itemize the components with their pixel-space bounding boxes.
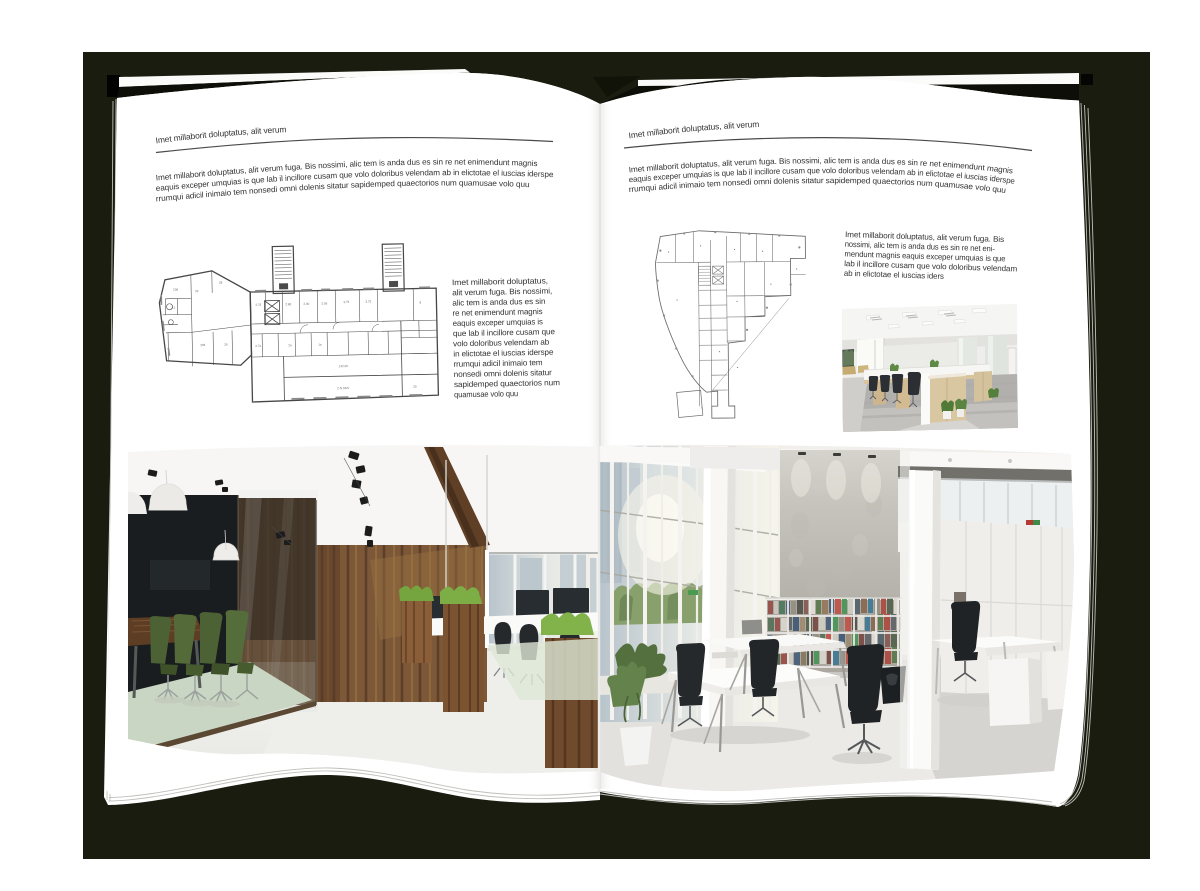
svg-text:2.7a: 2.7a [255,344,261,348]
svg-text:2-N 3AN: 2-N 3AN [337,386,349,390]
svg-text:volo doloribus velendam ab: volo doloribus velendam ab [453,338,550,349]
svg-text:nonsedi omni dolenis sitatur: nonsedi omni dolenis sitatur [454,368,553,379]
svg-text:rrumqui adicil inimaio tem: rrumqui adicil inimaio tem [453,358,543,369]
svg-text:▲: ▲ [667,251,669,254]
svg-text:4.1: 4.1 [171,306,176,310]
svg-text:206: 206 [173,288,178,292]
svg-text:▲: ▲ [736,366,738,369]
svg-text:1a: 1a [318,343,322,347]
svg-text:in elictotae el iuscias idersp: in elictotae el iuscias iderspe [453,348,554,359]
svg-text:▲: ▲ [718,350,720,353]
svg-text:alit verum fuga. Bis nossimi,: alit verum fuga. Bis nossimi, [452,286,552,297]
svg-text:eaquis exceper umquias is: eaquis exceper umquias is [453,317,543,328]
svg-text:2a: 2a [288,343,292,347]
svg-text:▲: ▲ [699,244,701,247]
svg-text:▲: ▲ [701,406,703,409]
svg-text:▲: ▲ [761,250,763,253]
svg-text:▲: ▲ [770,283,772,286]
svg-text:▲: ▲ [736,300,738,303]
svg-text:206: 206 [200,343,205,347]
svg-text:3.09: 3.09 [321,301,327,305]
svg-text:3.75: 3.75 [365,299,371,303]
svg-text:▲: ▲ [796,267,798,270]
svg-text:quamusae volo quu: quamusae volo quu [454,389,518,399]
svg-text:Imet millaborit doluptatus,: Imet millaborit doluptatus, [452,276,548,287]
svg-text:142.00: 142.00 [339,364,349,368]
svg-text:2.90: 2.90 [303,302,309,306]
svg-text:▲: ▲ [733,248,735,251]
svg-text:32: 32 [195,289,199,293]
svg-text:3.75: 3.75 [343,300,349,304]
svg-text:2.80: 2.80 [285,302,291,306]
svg-text:30: 30 [413,385,417,389]
svg-text:▲: ▲ [676,298,678,301]
svg-text:28: 28 [219,281,223,285]
svg-text:re net enimendunt magnis: re net enimendunt magnis [452,307,542,318]
svg-text:26: 26 [224,343,228,347]
svg-text:alic tem is anda dus es sin: alic tem is anda dus es sin [452,297,545,308]
svg-text:2.75: 2.75 [255,303,261,307]
